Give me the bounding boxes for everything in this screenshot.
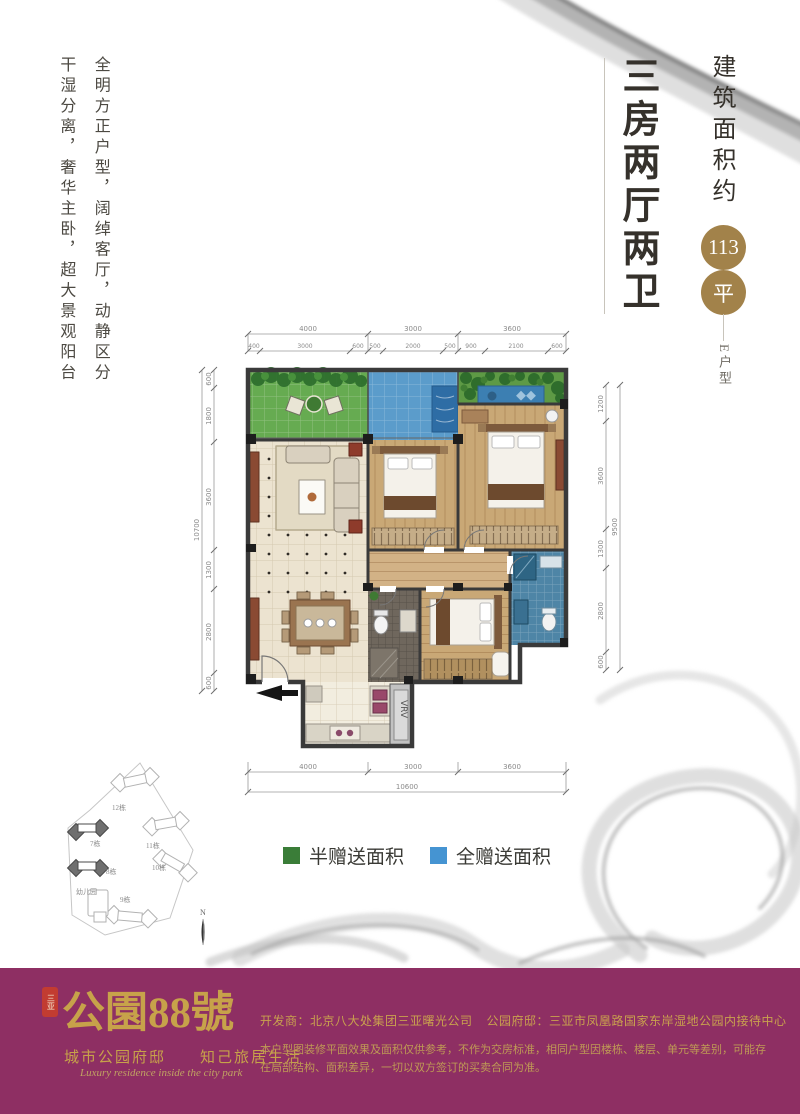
svg-text:2100: 2100 <box>508 343 523 350</box>
svg-text:3600: 3600 <box>597 467 605 485</box>
brochure-page: 全明方正户型，阔绰客厅，动静区分 干湿分离，奢华主卧，超大景观阳台 三房两厅两卫… <box>0 0 800 1114</box>
site-map: 12栋 11栋 10栋 9栋 7栋 8栋 幼儿园 N <box>50 762 220 952</box>
intro-line-1: 全明方正户型，阔绰客厅，动静区分 <box>82 56 116 386</box>
svg-text:12栋: 12栋 <box>112 803 126 812</box>
brand-seal-text: 三亚 <box>46 994 55 1010</box>
legend: 半赠送面积 全赠送面积 <box>283 842 551 869</box>
office-info: 公园府邸：三亚市凤凰路国家东岸湿地公园内接待中心 <box>487 1012 787 1029</box>
vrv-shaft: VRV <box>390 684 412 746</box>
floor-plan: VRV <box>193 316 638 804</box>
brand-seal: 三亚 <box>42 987 58 1017</box>
legend-item-half-gift: 半赠送面积 <box>283 842 404 869</box>
bedroom3-furniture <box>424 595 510 679</box>
entrance-arrow <box>256 685 298 701</box>
area-label: 建筑面积约 <box>704 54 739 229</box>
area-unit-badge: 平 <box>701 270 746 315</box>
intro-text: 全明方正户型，阔绰客厅，动静区分 干湿分离，奢华主卧，超大景观阳台 <box>48 56 117 386</box>
svg-text:3600: 3600 <box>503 763 521 771</box>
shrub-band-and-pool <box>458 370 566 406</box>
unit-type-divider <box>723 314 724 341</box>
svg-text:10700: 10700 <box>193 519 201 541</box>
north-arrow: N <box>200 908 206 945</box>
footer: 三亚 公園88號 城市公园府邸 知己旅居生活 Luxury residence … <box>0 968 800 1114</box>
svg-text:3000: 3000 <box>404 325 422 333</box>
unit-type-label: E户型 <box>715 344 734 414</box>
svg-text:1300: 1300 <box>205 561 213 579</box>
svg-text:900: 900 <box>465 343 477 350</box>
svg-text:7栋: 7栋 <box>90 839 101 848</box>
svg-text:3000: 3000 <box>404 763 422 771</box>
area-value-badge: 113 <box>701 225 746 270</box>
legend-item-full-gift: 全赠送面积 <box>430 842 551 869</box>
svg-text:500: 500 <box>369 343 381 350</box>
half-gift-swatch <box>283 847 300 864</box>
layout-title: 三房两厅两卫 <box>610 56 665 336</box>
svg-text:600: 600 <box>205 676 213 689</box>
svg-text:10栋: 10栋 <box>152 863 166 872</box>
footer-info: 开发商：北京八大处集团三亚曙光公司 公园府邸：三亚市凤凰路国家东岸湿地公园内接待… <box>260 1012 772 1077</box>
svg-text:600: 600 <box>205 372 213 385</box>
brand-logo: 公園88號 <box>62 990 234 1037</box>
full-gift-label: 全赠送面积 <box>456 842 551 869</box>
svg-text:N: N <box>200 908 206 917</box>
svg-text:1300: 1300 <box>597 540 605 558</box>
intro-line-2: 干湿分离，奢华主卧，超大景观阳台 <box>48 56 82 386</box>
site-buildings-outline <box>88 768 197 928</box>
svg-text:10600: 10600 <box>396 783 418 791</box>
svg-text:3600: 3600 <box>205 488 213 506</box>
disclaimer-text: 本户型图装修平面效果及面积仅供参考，不作为交房标准，相同户型因楼栋、楼层、单元等… <box>260 1042 772 1077</box>
vrv-label: VRV <box>398 700 408 719</box>
slogan-english: Luxury residence inside the city park <box>80 1067 242 1079</box>
svg-text:3600: 3600 <box>503 325 521 333</box>
svg-text:500: 500 <box>444 343 456 350</box>
svg-text:9500: 9500 <box>611 518 619 536</box>
site-buildings-highlighted <box>68 820 109 877</box>
svg-text:4000: 4000 <box>299 325 317 333</box>
svg-text:9栋: 9栋 <box>120 895 131 904</box>
svg-text:8栋: 8栋 <box>106 867 117 876</box>
svg-text:600: 600 <box>352 343 364 350</box>
svg-text:幼儿园: 幼儿园 <box>76 887 97 896</box>
svg-text:2800: 2800 <box>597 602 605 620</box>
terrace-half-gift <box>248 367 368 440</box>
developer-info: 开发商：北京八大处集团三亚曙光公司 <box>260 1012 473 1029</box>
svg-text:2800: 2800 <box>205 623 213 641</box>
svg-text:4000: 4000 <box>299 763 317 771</box>
svg-text:400: 400 <box>248 343 260 350</box>
svg-text:1200: 1200 <box>597 395 605 413</box>
svg-text:600: 600 <box>551 343 563 350</box>
svg-text:3000: 3000 <box>297 343 312 350</box>
half-gift-label: 半赠送面积 <box>309 842 404 869</box>
headline-divider <box>604 58 605 314</box>
terrace-full-gift <box>368 370 458 440</box>
full-gift-swatch <box>430 847 447 864</box>
svg-text:600: 600 <box>597 655 605 668</box>
svg-text:11栋: 11栋 <box>146 841 160 850</box>
svg-text:2000: 2000 <box>405 343 420 350</box>
svg-text:1800: 1800 <box>205 407 213 425</box>
